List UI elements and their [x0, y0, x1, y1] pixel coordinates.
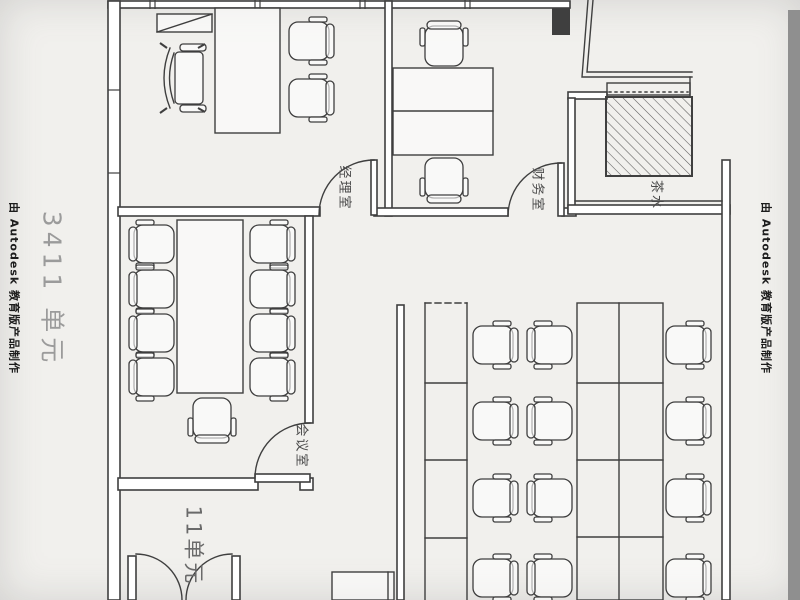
meeting-room-label: 会议室: [295, 423, 308, 468]
unit-label-bottom: 11单元: [183, 506, 204, 587]
chair: [527, 474, 572, 522]
guest-chair: [289, 17, 334, 65]
floor-plan-page: 由 Autodesk 教育版产品制作 3411 单元 由 Autodesk 教育…: [0, 0, 800, 600]
finance-office-furniture: [393, 21, 493, 203]
chair: [188, 398, 236, 443]
chair: [666, 554, 711, 600]
reception-desk: [332, 572, 394, 600]
desk-run-left: [425, 303, 467, 600]
executive-chair: [160, 43, 206, 113]
chair: [473, 474, 518, 522]
manager-office-furniture: [157, 8, 334, 133]
tea-room-label: 茶水: [650, 180, 663, 210]
chair: [473, 554, 518, 600]
chair: [473, 397, 518, 445]
desk-run-center: [577, 303, 663, 600]
chair: [250, 309, 295, 357]
meeting-room-furniture: [129, 220, 295, 443]
chair: [473, 321, 518, 369]
conference-table: [177, 220, 243, 393]
chair: [129, 309, 174, 357]
column: [552, 8, 570, 35]
chair: [250, 220, 295, 268]
chair: [129, 220, 174, 268]
hatched-shaft: [606, 97, 692, 176]
window-sill: [607, 83, 690, 95]
scan-edge-strip: [788, 10, 800, 600]
chair: [666, 321, 711, 369]
chair: [250, 265, 295, 313]
finance-office-label: 财务室: [531, 167, 544, 212]
manager-office-label: 经理室: [338, 165, 351, 210]
floor-plan-drawing: [0, 0, 800, 600]
chair: [527, 554, 572, 600]
left-producer-watermark: 由 Autodesk 教育版产品制作: [9, 202, 20, 374]
chair: [527, 397, 572, 445]
chair: [527, 321, 572, 369]
unit-number-watermark: 3411 单元: [40, 211, 65, 368]
chair: [666, 397, 711, 445]
guest-chair: [289, 74, 334, 122]
chair: [420, 21, 468, 66]
chair: [129, 265, 174, 313]
stair-shaft-structure: [575, 0, 722, 201]
manager-desk: [215, 8, 280, 133]
right-producer-watermark: 由 Autodesk 教育版产品制作: [761, 202, 772, 374]
open-office-furniture: [425, 303, 711, 600]
chair: [250, 353, 295, 401]
chair: [420, 158, 468, 203]
chair: [666, 474, 711, 522]
chair: [129, 353, 174, 401]
